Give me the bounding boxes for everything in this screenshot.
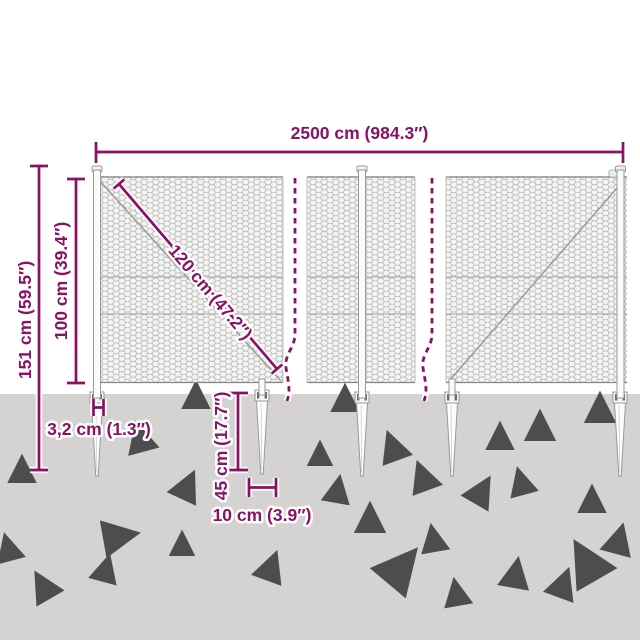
label-spike-length: 45 cm (17.7″) [211,392,231,501]
label-fence-height: 100 cm (39.4″) [51,222,71,340]
fence-panel-right [446,170,627,383]
diagram-svg: 2500 cm (984.3″) 151 cm (59.5″) 100 cm (… [0,0,640,640]
label-spike-width: 10 cm (3.9″) [213,505,312,525]
label-post-width: 3,2 cm (1.3″) [47,419,151,439]
post-stub [259,379,265,395]
post-stub [449,379,455,395]
fence-post [357,166,367,398]
fence-post [616,166,626,398]
label-total-width: 2500 cm (984.3″) [291,123,429,143]
break-mark-right [423,178,432,401]
label-total-height: 151 cm (59.5″) [15,261,35,379]
break-mark-left [286,178,295,401]
fence-post [92,166,102,398]
dimension-total-width [96,142,623,163]
product-dimension-diagram: 2500 cm (984.3″) 151 cm (59.5″) 100 cm (… [0,0,640,640]
